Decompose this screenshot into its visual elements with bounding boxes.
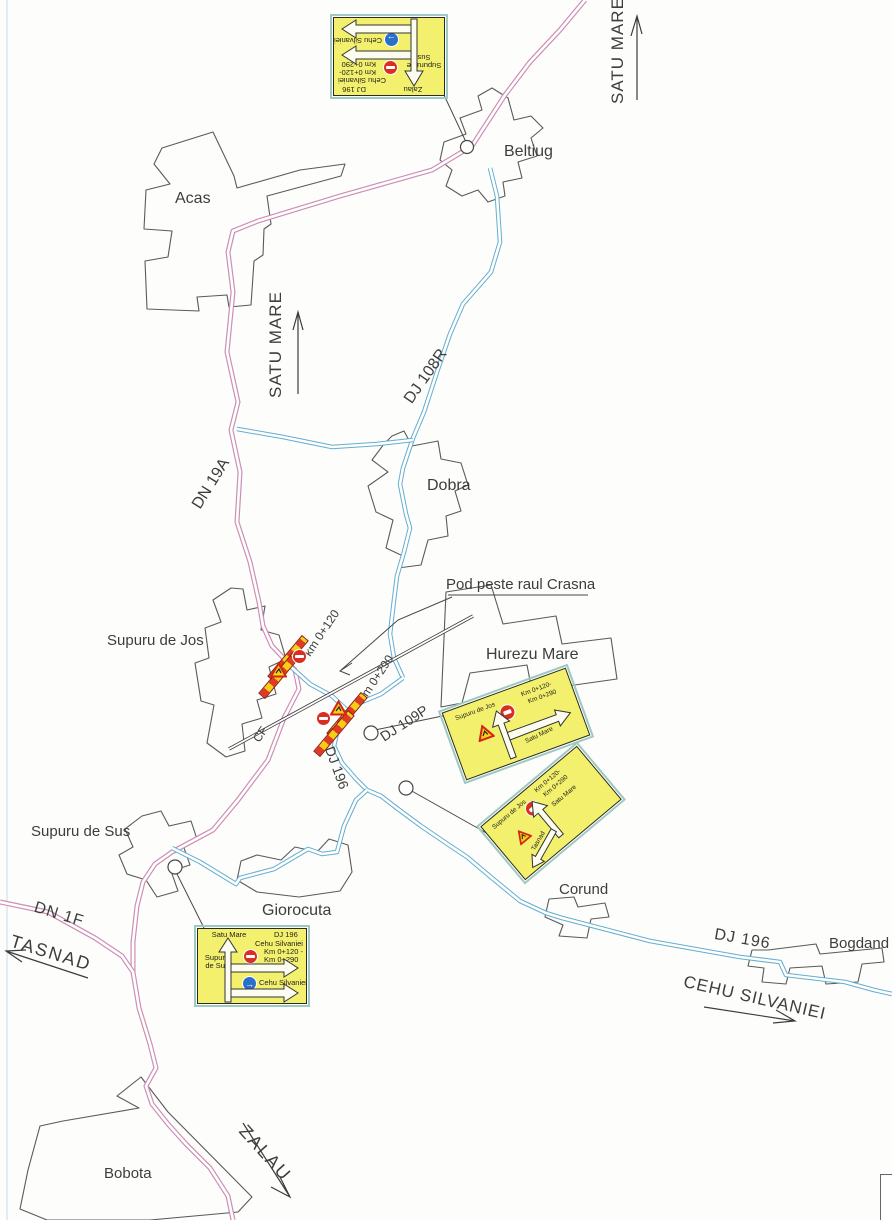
acas-polygon	[144, 132, 345, 311]
label-pod-peste-raul-crasna: Pod peste raul Crasna	[446, 576, 595, 593]
label-satu-mare-top: SATU MARE	[608, 0, 628, 104]
satu-mare-mid-arrow	[293, 312, 303, 394]
road-dn19a	[133, 0, 585, 1220]
cropped-edge-box	[880, 1174, 892, 1220]
road-dn19a-core	[133, 0, 585, 1220]
sign-arrow-diagram	[198, 929, 308, 1005]
warning-triangle-icon	[270, 662, 287, 678]
giorocuta-polygon	[237, 839, 352, 897]
label-dobra: Dobra	[427, 477, 471, 495]
label-supuru-de-jos: Supuru de Jos	[107, 632, 204, 649]
road-dj196-core	[334, 678, 892, 994]
road-dj108r-core	[390, 168, 500, 678]
dobra-polygon	[368, 431, 468, 568]
label-giorocuta: Giorocuta	[262, 902, 331, 920]
junction-corund	[399, 781, 413, 795]
no-entry-icon	[317, 712, 330, 725]
detour-map: SATU MARE SATU MARE Beltiug Acas Dobra D…	[0, 0, 892, 1220]
label-acas: Acas	[175, 190, 211, 208]
junction-dj109p	[364, 726, 378, 740]
label-bobota: Bobota	[104, 1165, 152, 1182]
junction-beltiug	[461, 141, 474, 154]
label-corund: Corund	[559, 881, 608, 898]
label-beltiug: Beltiug	[504, 143, 553, 161]
label-bogdand: Bogdand	[829, 935, 889, 952]
label-satu-mare-mid: SATU MARE	[266, 291, 286, 398]
leader-north-sign	[444, 95, 466, 142]
junction-supuru-de-sus	[168, 860, 182, 874]
map-linework	[0, 0, 892, 1220]
junction-markers	[168, 141, 474, 875]
road-dj196-casing	[334, 678, 892, 994]
sign-arrow-diagram	[332, 16, 444, 95]
label-hurezu-mare: Hurezu Mare	[486, 646, 578, 664]
road-dj108r-casing	[390, 168, 500, 678]
no-entry-icon	[293, 650, 306, 663]
detour-sign-north: Zalau DJ 196 Cehu Silvaniei Km 0+120- Km…	[333, 17, 445, 96]
bobota-polygon	[20, 1077, 252, 1220]
warning-triangle-icon	[330, 700, 347, 716]
satu-mare-top-arrow	[631, 16, 642, 100]
road-connector	[237, 429, 413, 447]
detour-sign-giorocuta: Satu Mare DJ 196 Cehu Silvaniei Km 0+120…	[197, 928, 307, 1004]
road-dj108r	[390, 168, 500, 678]
road-dn19a-casing	[133, 0, 585, 1220]
label-supuru-de-sus: Supuru de Sus	[31, 823, 130, 840]
direction-arrows	[6, 16, 795, 1197]
leader-giorocuta-sign	[177, 874, 204, 928]
